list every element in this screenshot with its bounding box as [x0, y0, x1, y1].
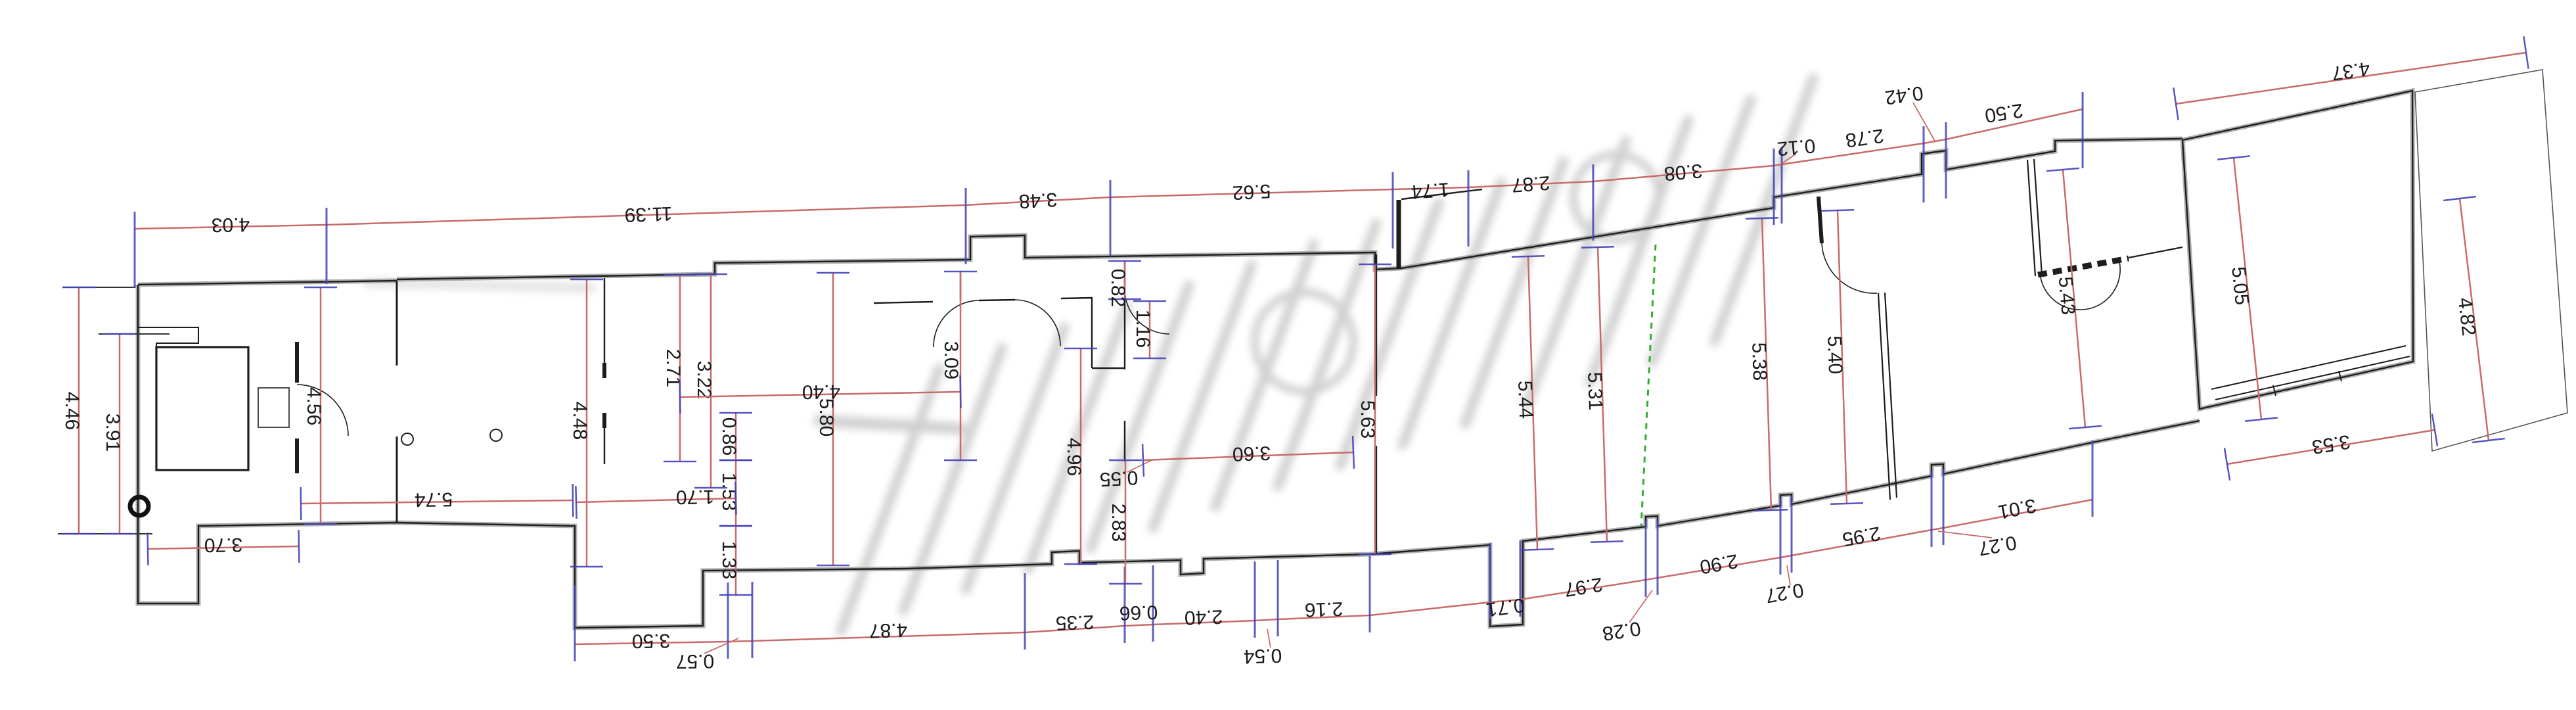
dimension-end-tick [1746, 218, 1778, 219]
dimension-label: 4.87 [869, 619, 908, 642]
right-room-wall-shadow [2182, 91, 2413, 409]
dimension-label: 0.27 [1764, 579, 1805, 607]
hall-partition-double [1878, 293, 1897, 500]
dimension-label: 3.22 [693, 361, 715, 399]
left-room-square [156, 347, 248, 470]
dimension-label: 2.78 [1844, 124, 1885, 151]
floor-plan-page: 4.0311.393.485.621.742.873.080.122.780.4… [0, 0, 2576, 710]
dimension-label: 11.39 [624, 202, 673, 226]
dimension-label: 2.97 [1563, 573, 1604, 601]
right-door-lintel-dashed [2038, 258, 2129, 275]
dimension-end-tick [1142, 444, 1144, 477]
dimension-label: 3.91 [102, 414, 124, 452]
vestibule-door-arc-left [934, 300, 979, 347]
dimension-label: 3.08 [1663, 160, 1704, 185]
dimension-label: 5.62 [1232, 180, 1271, 204]
dimension-label: 2.87 [1511, 172, 1551, 196]
dimension-end-tick [299, 530, 300, 563]
watermark [368, 78, 1813, 631]
dimension-label: 4.96 [1063, 438, 1085, 476]
dimension-label: 1.33 [718, 541, 740, 579]
dimension-end-tick [148, 532, 148, 565]
dimension-label: 0.66 [1119, 601, 1158, 624]
hall-door-arc [1822, 243, 1877, 293]
dimension-label: 3.50 [632, 630, 671, 652]
dimension-end-tick [1755, 509, 1788, 511]
vestibule-door-arc-right [1015, 300, 1060, 346]
dimension-end-tick [1830, 503, 1863, 504]
dimension-label: 3.09 [940, 341, 962, 379]
walls-layer [58, 70, 2567, 628]
survey-green-line [1641, 245, 1656, 526]
dimension-label: 5.74 [415, 488, 453, 511]
dimension-label: 4.03 [212, 214, 250, 236]
dimension-label: 5.80 [815, 398, 837, 437]
left-shaft-square [258, 388, 289, 427]
dimension-end-tick [1521, 549, 1554, 550]
dimension-label: 2.40 [1184, 605, 1223, 628]
dimension-end-tick [1512, 256, 1545, 257]
dimension-label: 0.55 [1099, 467, 1139, 490]
dimension-label: 0.12 [1776, 135, 1817, 160]
dimension-end-tick [1581, 247, 1614, 248]
dimension-label: 3.53 [2311, 431, 2352, 458]
dimension-label: 5.63 [1357, 400, 1378, 438]
hall-door-jamb [1819, 197, 1822, 243]
dimension-end-tick [301, 487, 302, 520]
dimension-end-tick [576, 486, 576, 519]
dimension-label: 1.74 [1411, 178, 1451, 202]
dimension-label: 2.35 [1055, 611, 1095, 634]
dimension-label: 2.71 [662, 349, 684, 387]
floor-plan-drawing: 4.0311.393.485.621.742.873.080.122.780.4… [0, 0, 2576, 710]
right-door-arc [2041, 262, 2120, 310]
outer-top-wall-shadow [138, 139, 2182, 285]
dimension-label: 0.57 [676, 650, 715, 673]
dimension-end-tick [680, 381, 681, 414]
dimension-label: 2.95 [1841, 522, 1882, 550]
dimension-label: 5.05 [2227, 266, 2253, 306]
dimension-label: 0.86 [718, 417, 740, 456]
dimension-label: 0.28 [1601, 617, 1642, 645]
dimensions-layer: 4.0311.393.485.621.742.873.080.122.780.4… [61, 36, 2529, 672]
dimension-label: 2.83 [1108, 504, 1129, 542]
dimension-label: 0.27 [1977, 531, 2018, 559]
dimension-label: 1.70 [676, 486, 715, 508]
right-door-piers [2027, 159, 2042, 276]
dimension-label: 5.31 [1583, 371, 1606, 411]
dimension-end-tick [960, 375, 961, 408]
dimension-label: 0.54 [1243, 644, 1282, 667]
dimension-label: 3.48 [1018, 189, 1058, 212]
neighbor-outline [2415, 70, 2567, 451]
green-dashed-line [1641, 245, 1656, 526]
dimension-label: 5.38 [1748, 342, 1771, 381]
dimension-label: 4.48 [569, 402, 591, 440]
dimension-label: 0.42 [1884, 82, 1924, 108]
right-door-link-wall [2129, 247, 2182, 258]
right-room-walls [2182, 91, 2413, 409]
dimension-label: 3.60 [1232, 442, 1271, 465]
dimension-label: 3.70 [204, 534, 243, 556]
dimension-leader [1629, 590, 1652, 623]
dimension-label: 4.37 [2330, 57, 2371, 84]
right-room-inner-wall [2211, 346, 2410, 400]
dimension-label: 4.82 [2454, 296, 2480, 337]
dimension-end-tick [573, 484, 574, 517]
dimension-label: 1.16 [1132, 310, 1154, 348]
dimension-label: 4.40 [802, 381, 841, 403]
dimension-label: 4.46 [61, 392, 83, 430]
dimension-label: 5.44 [1514, 380, 1537, 419]
left-block-notch [138, 327, 198, 347]
outer-top-wall [138, 139, 2182, 285]
dimension-label: 5.43 [2054, 275, 2079, 316]
dimension-label: 5.40 [1823, 335, 1846, 375]
dimension-label: 4.56 [303, 387, 325, 425]
dimension-label: 2.16 [1304, 598, 1344, 621]
dimension-label: 2.50 [1983, 99, 2025, 127]
dimension-label: 2.90 [1698, 550, 1740, 578]
point-marker-1 [401, 433, 413, 445]
dimension-end-tick [1591, 541, 1623, 542]
point-marker-2 [490, 429, 502, 441]
dimension-end-tick [735, 482, 736, 515]
dimension-label: 3.01 [1996, 494, 2038, 523]
dimension-label: 0.82 [1107, 269, 1129, 307]
dimension-end-tick [1821, 210, 1854, 211]
